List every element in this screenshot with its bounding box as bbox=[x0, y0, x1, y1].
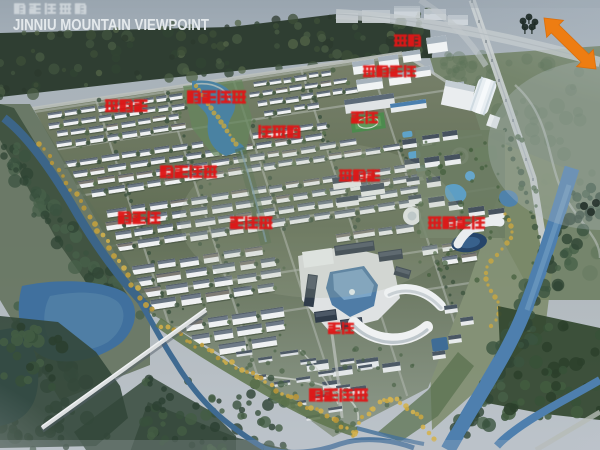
svg-text:JINNIU MOUNTAIN VIEWPOINT: JINNIU MOUNTAIN VIEWPOINT bbox=[13, 17, 209, 34]
